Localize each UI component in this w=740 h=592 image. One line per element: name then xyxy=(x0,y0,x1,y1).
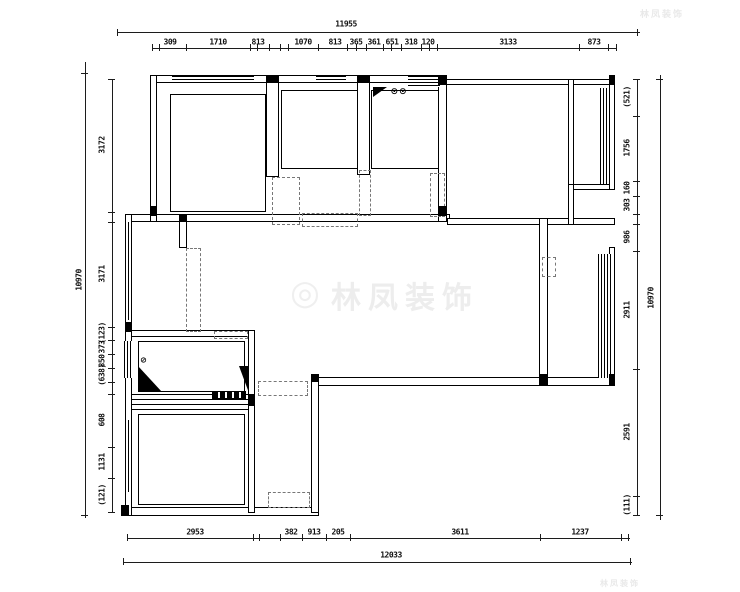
door-opening xyxy=(268,492,310,508)
column xyxy=(266,75,279,83)
dim-label-top-total: 11955 xyxy=(335,20,357,29)
window xyxy=(598,254,612,378)
wall xyxy=(126,404,255,410)
dim-label: 873 xyxy=(588,38,601,47)
dim-label-left-total: 10970 xyxy=(75,269,84,291)
dim-line-top-overall xyxy=(117,32,640,33)
wall xyxy=(248,404,255,513)
dim-label-bottom-total: 12033 xyxy=(380,551,402,560)
watermark-logo-icon: ◎ xyxy=(290,273,320,313)
window xyxy=(600,88,612,184)
dim-line-bottom-segments xyxy=(127,538,630,539)
wall xyxy=(568,79,615,85)
dim-label: 986 xyxy=(623,231,632,244)
door-opening xyxy=(272,177,300,225)
stove-burners-icon: ⊙⊙ xyxy=(390,87,407,97)
wall xyxy=(248,330,255,400)
dim-label: 1070 xyxy=(294,38,311,47)
column xyxy=(311,374,319,382)
dim-label: 361 xyxy=(368,38,381,47)
dim-label: 382 xyxy=(285,528,298,537)
dim-label: 373 xyxy=(98,341,107,354)
dim-label: 1131 xyxy=(98,453,107,470)
dim-label: (521) xyxy=(623,86,632,108)
dim-line-bottom-overall xyxy=(123,562,632,563)
column xyxy=(179,214,187,222)
dim-label: 2911 xyxy=(623,301,632,318)
dim-label: 813 xyxy=(252,38,265,47)
watermark-corner-top: 林凤装饰 xyxy=(640,7,684,20)
column xyxy=(150,206,157,216)
wall xyxy=(311,377,615,386)
window xyxy=(316,76,346,83)
dim-label: 3171 xyxy=(98,265,107,282)
window xyxy=(125,420,133,492)
dim-line-top-segments xyxy=(152,48,617,49)
dim-line-right-segments xyxy=(637,79,638,515)
dim-label: 651 xyxy=(386,38,399,47)
door-opening xyxy=(542,257,556,277)
dim-label: (121) xyxy=(98,484,107,506)
column xyxy=(609,374,615,386)
column xyxy=(539,374,548,386)
wall xyxy=(447,218,615,225)
dim-label: 160 xyxy=(623,182,632,195)
room-outline xyxy=(170,94,266,212)
dim-label: 1237 xyxy=(571,528,588,537)
watermark-text: 林凤装饰 xyxy=(331,273,479,317)
window xyxy=(172,76,254,83)
dim-label: 309 xyxy=(164,38,177,47)
room-outline xyxy=(371,90,439,169)
dim-label: 913 xyxy=(308,528,321,537)
dim-label: 303 xyxy=(623,199,632,212)
dim-label: 3611 xyxy=(451,528,468,537)
dim-label: 365 xyxy=(350,38,363,47)
wall xyxy=(445,79,570,85)
dim-label-right-total: 10970 xyxy=(647,287,656,309)
column xyxy=(357,75,370,83)
dim-label: 2591 xyxy=(623,423,632,440)
watermark-corner-bottom: 林凤装饰 xyxy=(600,578,640,589)
dim-label: 120 xyxy=(422,38,435,47)
room-outline xyxy=(281,90,358,169)
column xyxy=(438,206,447,216)
window xyxy=(408,76,440,87)
door-opening xyxy=(258,381,308,396)
dim-label: 608 xyxy=(98,414,107,427)
dim-label: (111) xyxy=(623,494,632,516)
dim-label: 205 xyxy=(332,528,345,537)
column xyxy=(438,75,447,85)
dim-label: 2953 xyxy=(186,528,203,537)
window xyxy=(124,341,132,378)
bath-mat-icon xyxy=(212,391,246,399)
door-opening xyxy=(186,248,201,332)
dim-label: 318 xyxy=(405,38,418,47)
column xyxy=(125,322,132,332)
column xyxy=(121,505,129,516)
wall xyxy=(568,79,574,190)
wall xyxy=(568,184,574,225)
window xyxy=(125,222,133,320)
wall xyxy=(357,75,370,175)
wall xyxy=(266,75,279,177)
dim-label: 813 xyxy=(329,38,342,47)
dim-label: 3172 xyxy=(98,136,107,153)
wall xyxy=(121,507,319,516)
door-opening xyxy=(302,213,358,227)
floor-drain-icon: ⊘ xyxy=(140,356,148,365)
dim-label: (638) xyxy=(98,364,107,386)
wall xyxy=(150,75,157,222)
dim-label: 1710 xyxy=(209,38,226,47)
door-opening xyxy=(359,170,371,216)
room-outline xyxy=(138,414,245,505)
dim-label: 3133 xyxy=(499,38,516,47)
column xyxy=(248,394,255,406)
door-opening xyxy=(214,331,248,339)
wall xyxy=(539,218,548,385)
column xyxy=(609,75,615,85)
dim-line-left-overall xyxy=(85,62,86,518)
dim-line-right-overall xyxy=(660,75,661,520)
wall xyxy=(311,380,319,513)
wall xyxy=(568,184,615,190)
floor-plan-canvas: ◎ 林凤装饰 林凤装饰 林凤装饰 11955 309 1710 813 1070… xyxy=(0,0,740,592)
dim-label: 1756 xyxy=(623,139,632,156)
